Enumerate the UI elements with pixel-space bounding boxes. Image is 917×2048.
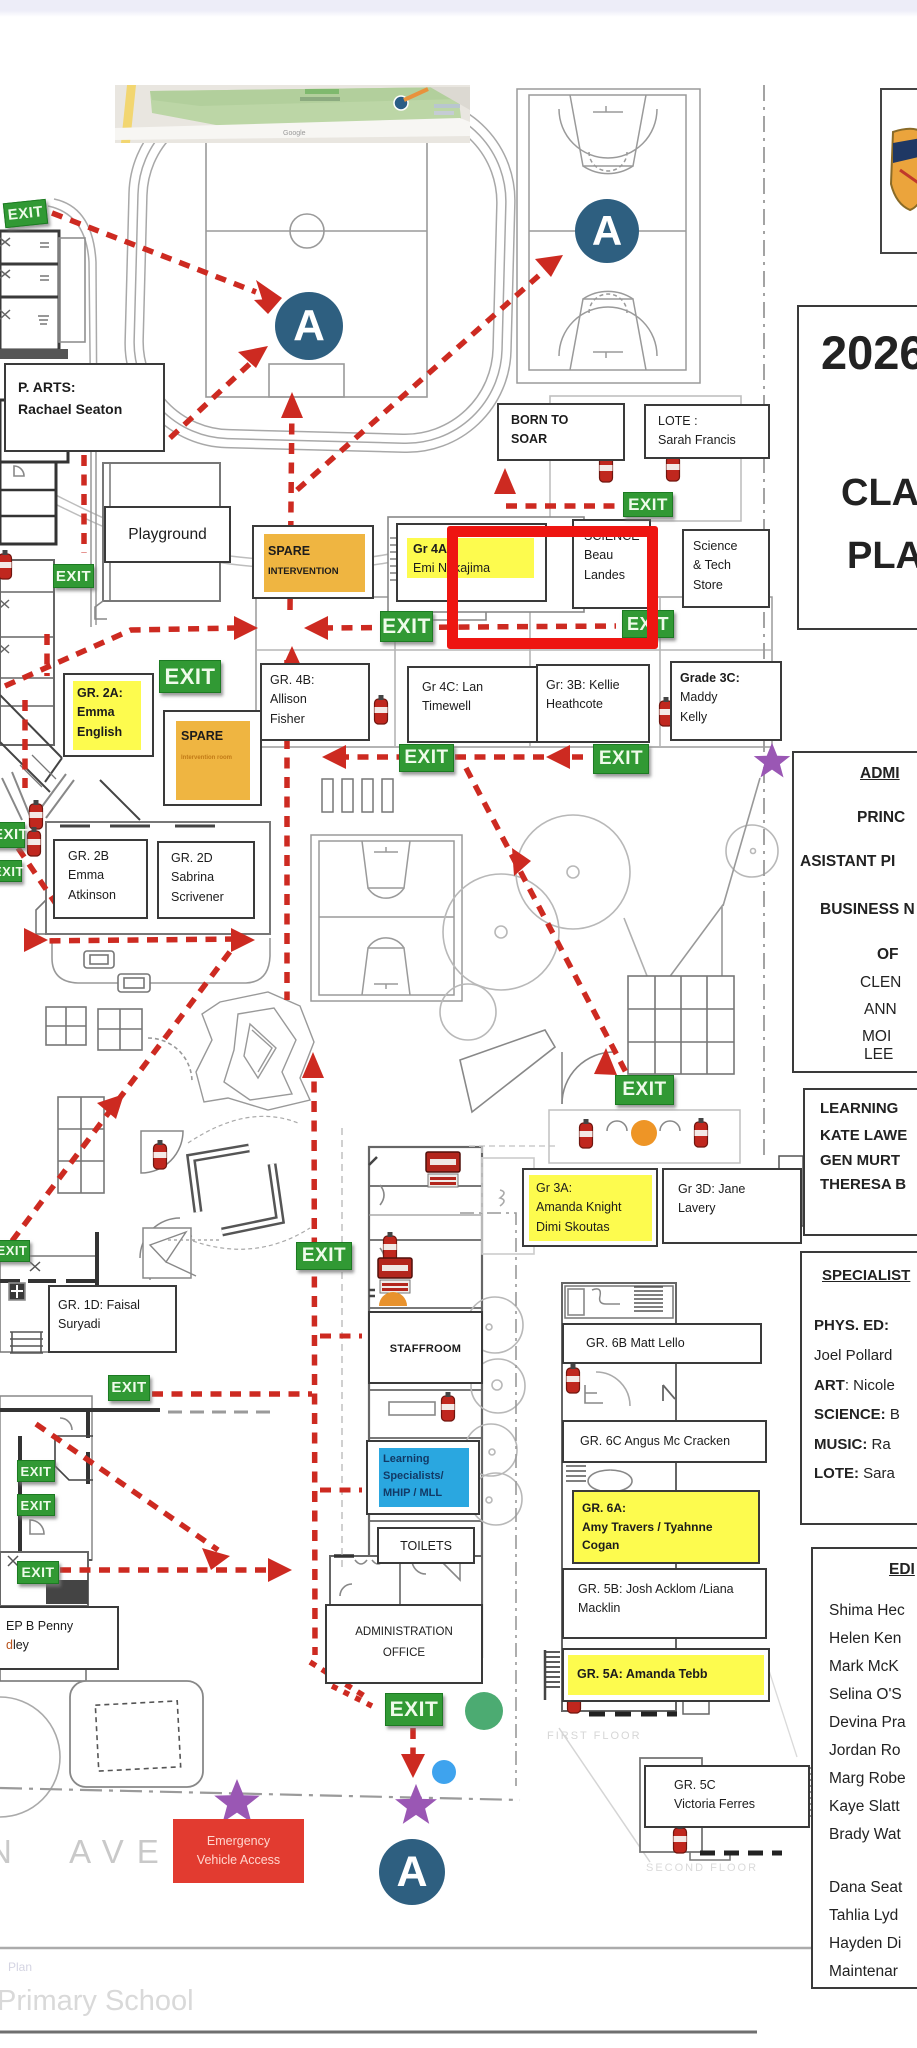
svg-text:Google: Google [283, 130, 306, 137]
